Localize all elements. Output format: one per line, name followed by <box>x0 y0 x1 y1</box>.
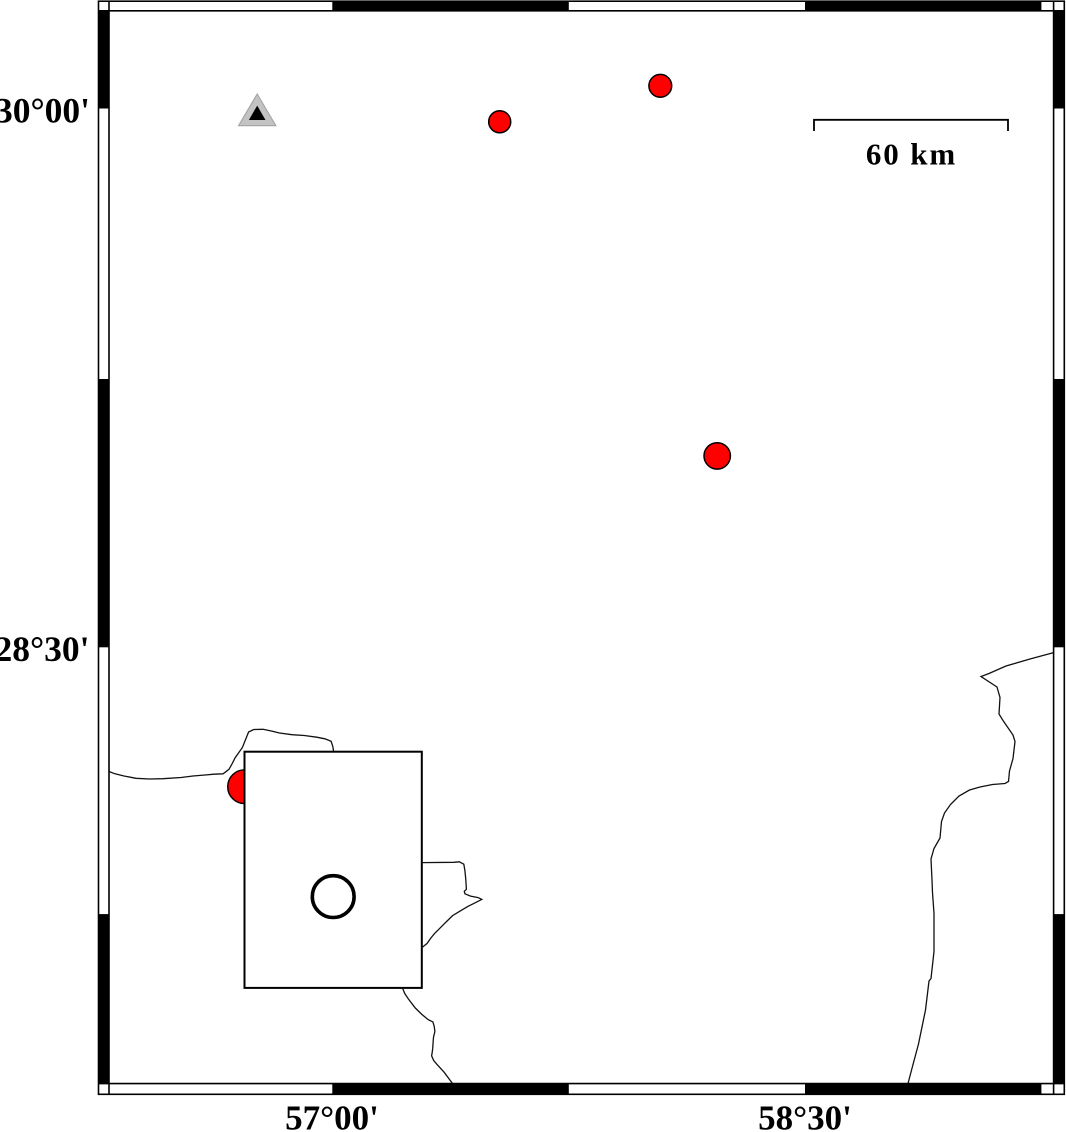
svg-text:60 km: 60 km <box>866 137 957 172</box>
svg-text:30°00': 30°00' <box>0 91 90 131</box>
svg-text:57°00': 57°00' <box>285 1099 379 1132</box>
svg-text:28°30': 28°30' <box>0 629 90 669</box>
svg-text:58°30': 58°30' <box>758 1099 852 1132</box>
